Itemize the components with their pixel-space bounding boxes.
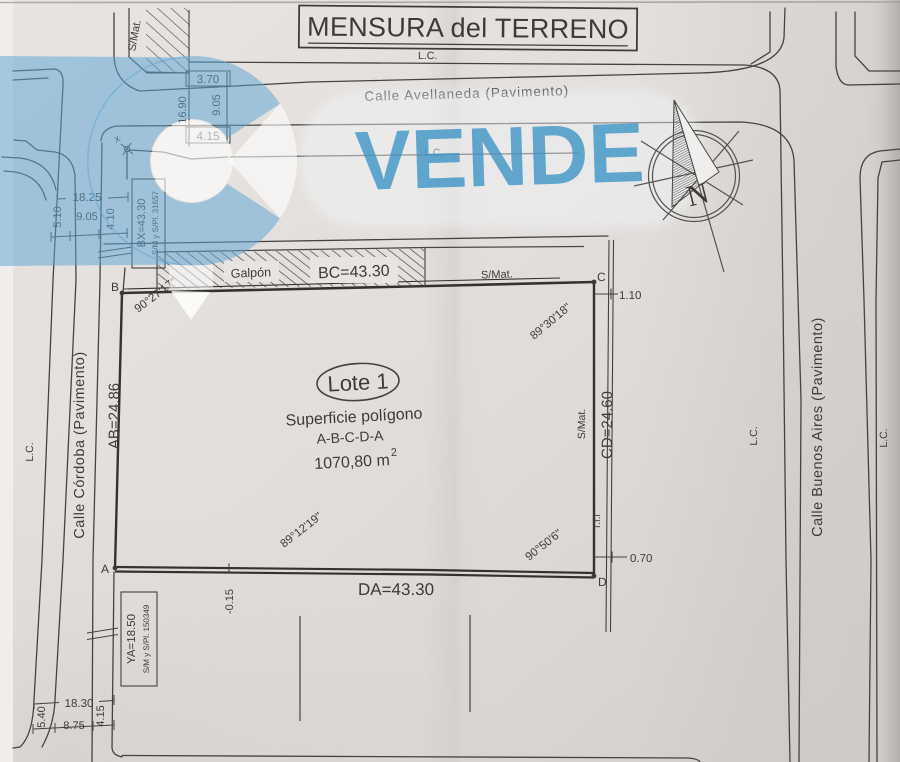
svg-text:18.30: 18.30 (65, 698, 94, 710)
svg-text:A: A (101, 562, 109, 576)
svg-text:L.C.: L.C. (24, 442, 36, 461)
svg-text:2: 2 (391, 447, 398, 459)
svg-text:AB=24.86: AB=24.86 (106, 383, 123, 449)
svg-text:L.C.: L.C. (878, 428, 890, 447)
svg-text:Lote 1: Lote 1 (327, 368, 389, 396)
svg-text:Calle Buenos Aires (Pavimento): Calle Buenos Aires (Pavimento) (810, 317, 826, 537)
svg-text:1.10: 1.10 (619, 290, 641, 302)
svg-text:-0.15: -0.15 (224, 589, 236, 614)
svg-text:C: C (597, 270, 606, 284)
svg-text:L.C.: L.C. (748, 426, 760, 445)
svg-text:S/Mat.: S/Mat. (576, 409, 588, 439)
svg-text:D: D (598, 575, 607, 589)
svg-text:BC=43.30: BC=43.30 (318, 263, 390, 282)
svg-text:5.40: 5.40 (36, 706, 48, 727)
svg-text:YA=18.50: YA=18.50 (126, 614, 138, 664)
svg-text:L.C.: L.C. (418, 50, 437, 62)
svg-text:B: B (111, 280, 119, 294)
svg-text:MENSURA del TERRENO: MENSURA del TERRENO (307, 12, 629, 45)
svg-text:S/M y S/Pl. 150349: S/M y S/Pl. 150349 (142, 604, 151, 673)
svg-text:Galpón: Galpón (230, 265, 271, 280)
svg-text:0.70: 0.70 (630, 553, 652, 565)
svg-text:Calle Córdoba (Pavimento): Calle Córdoba (Pavimento) (72, 351, 88, 538)
svg-text:4.15: 4.15 (95, 705, 107, 726)
svg-text:VENDE: VENDE (354, 105, 646, 208)
svg-text:DA=43.30: DA=43.30 (358, 580, 434, 599)
svg-text:8.75: 8.75 (63, 720, 84, 732)
svg-text:S/Mat.: S/Mat. (481, 268, 513, 281)
svg-text:T.f.l: T.f.l (592, 514, 603, 530)
